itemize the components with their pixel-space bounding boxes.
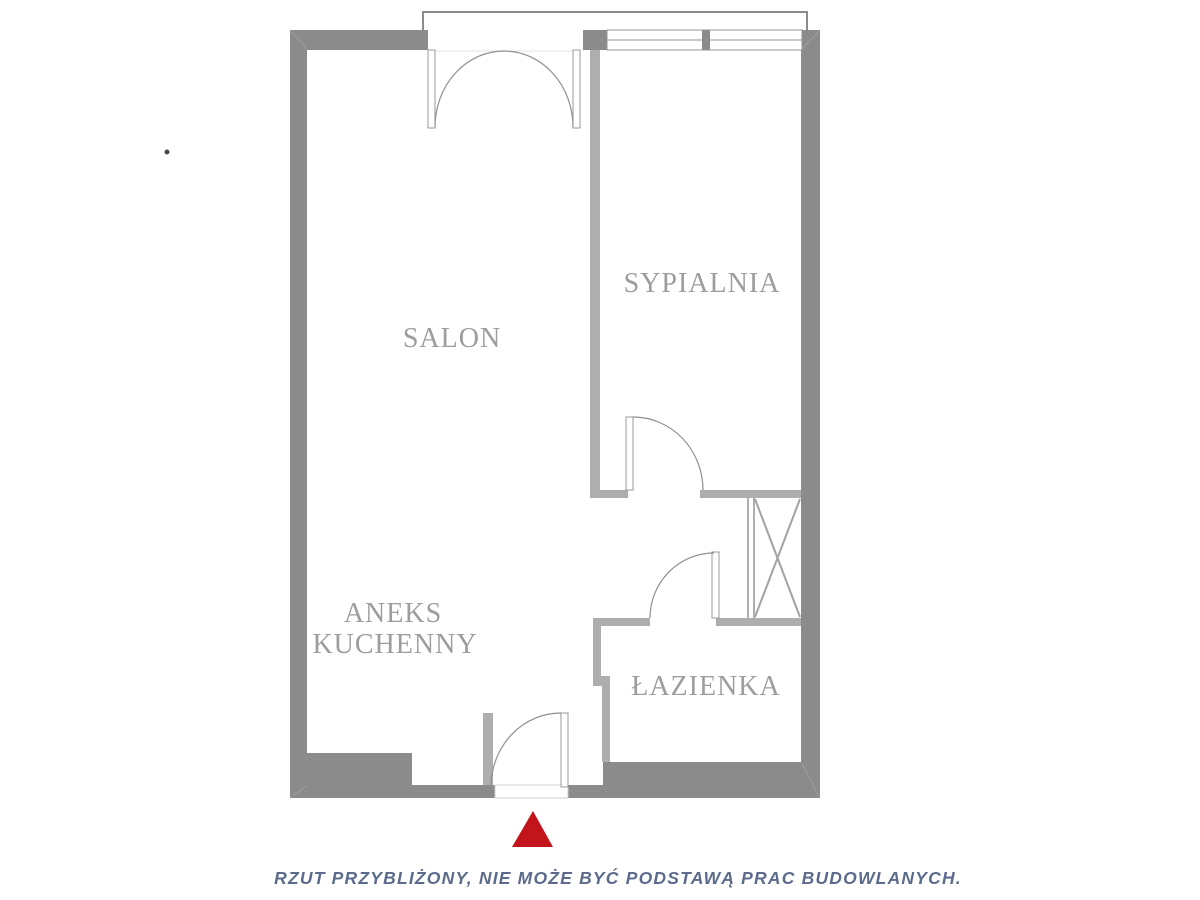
wall-right [801,30,820,798]
label-kitchen-line2: KUCHENNY [312,629,477,660]
disclaimer-text: RZUT PRZYBLIŻONY, NIE MOŻE BYĆ PODSTAWĄ … [274,867,962,888]
bedroom-door-leaf [626,417,633,490]
wall-bathroom-left-lower [602,683,610,762]
wall-salon-bedroom [590,50,600,490]
floor-plan-canvas: SALON SYPIALNIA ANEKS KUCHENNY ŁAZIENKA … [0,0,1200,900]
artifact-dot [165,150,170,155]
wall-top-left [290,30,428,50]
window-mullion-block [702,30,710,50]
wall-bedroom-bottom-right [700,490,801,498]
balcony-outline [423,12,807,30]
label-kitchen-line1: ANEKS [344,598,442,629]
entrance-door-arc [491,713,561,786]
bedroom-window [607,30,802,50]
wall-bathroom-top-left [593,618,650,626]
label-bathroom: ŁAZIENKA [631,671,781,702]
bathroom-door-arc [650,553,714,618]
shaft-box [748,498,800,618]
balcony-door-arc-left [435,51,504,127]
wall-left [290,30,307,798]
balcony-door-leaf-left [428,50,435,128]
label-salon: SALON [403,323,501,354]
bedroom-door [626,417,703,490]
entrance-threshold [495,785,568,798]
bedroom-door-arc [633,417,703,490]
wall-bathroom-bottom [603,762,801,798]
bathroom-door-leaf [712,552,719,618]
balcony-door-leaf-right [573,50,580,128]
entrance-marker-triangle [512,811,553,847]
balcony-door-arc-right [504,51,573,127]
wall-top-pier [583,30,607,50]
entrance-door-leaf [561,713,568,787]
floor-plan-page: SALON SYPIALNIA ANEKS KUCHENNY ŁAZIENKA … [0,0,1200,900]
bathroom-door [650,552,719,618]
label-sypialnia: SYPIALNIA [624,268,781,299]
wall-bathroom-top-right [716,618,801,626]
wall-bathroom-left-upper [593,618,601,683]
wall-bedroom-bottom-left [590,490,628,498]
balcony-door [428,50,580,128]
entrance-door [491,713,568,798]
wall-kitchen-thick [303,753,412,798]
